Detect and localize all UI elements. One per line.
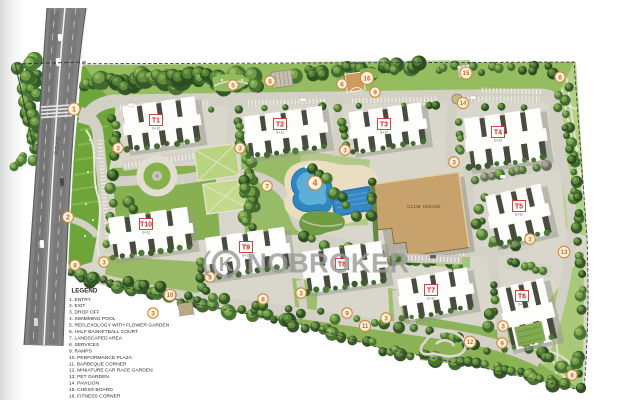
svg-text:16: 16 (363, 75, 371, 82)
svg-text:12. MINIATURE CAR RACE GARDEN: 12. MINIATURE CAR RACE GARDEN (69, 368, 153, 374)
svg-text:13: 13 (561, 250, 568, 256)
svg-text:1: 1 (72, 105, 76, 114)
svg-text:G+12: G+12 (494, 139, 502, 143)
svg-text:T2: T2 (276, 122, 284, 129)
svg-text:13. PET GARDEN: 13. PET GARDEN (69, 374, 109, 380)
svg-text:3: 3 (343, 147, 347, 154)
svg-text:10: 10 (167, 293, 174, 299)
svg-text:5. REFLEXOLOGY WITH FLOWER GAR: 5. REFLEXOLOGY WITH FLOWER GARDEN (69, 323, 170, 329)
svg-text:10. PERFORMANCE PLAZA: 10. PERFORMANCE PLAZA (69, 355, 133, 361)
svg-text:G+12: G+12 (142, 231, 150, 235)
svg-text:G+12: G+12 (380, 131, 388, 135)
svg-text:6. HALF BASKETBALL COURT: 6. HALF BASKETBALL COURT (69, 329, 138, 335)
svg-text:15. CHESS BOARD: 15. CHESS BOARD (69, 387, 113, 393)
svg-text:9: 9 (373, 89, 377, 96)
svg-text:3: 3 (528, 236, 532, 243)
svg-text:1. ENTRY: 1. ENTRY (69, 297, 92, 303)
svg-text:9: 9 (345, 310, 349, 317)
svg-text:NOBROKER: NOBROKER (247, 248, 410, 279)
svg-text:9. RAMPS: 9. RAMPS (69, 348, 93, 354)
svg-text:14. PAVILION: 14. PAVILION (69, 381, 99, 387)
svg-text:8: 8 (261, 296, 265, 303)
svg-text:LEGEND: LEGEND (72, 288, 98, 295)
svg-text:2: 2 (66, 215, 70, 222)
svg-text:G+12: G+12 (276, 131, 284, 135)
svg-text:T7: T7 (427, 288, 435, 295)
svg-text:3: 3 (452, 159, 456, 166)
svg-text:3: 3 (116, 145, 120, 152)
svg-text:3: 3 (102, 259, 106, 266)
svg-text:7. LANDSCAPED AREA: 7. LANDSCAPED AREA (69, 336, 123, 342)
svg-text:3: 3 (501, 323, 505, 330)
svg-text:8: 8 (558, 74, 562, 81)
svg-text:12: 12 (467, 340, 474, 346)
svg-text:16. FITNESS CORNER: 16. FITNESS CORNER (69, 394, 121, 400)
svg-text:T10: T10 (140, 222, 152, 229)
svg-text:3: 3 (151, 310, 155, 317)
svg-text:G+12: G+12 (518, 303, 526, 307)
svg-text:T1: T1 (152, 118, 160, 125)
svg-text:3. DROP OFF: 3. DROP OFF (69, 310, 100, 316)
svg-text:2. EXIT: 2. EXIT (69, 303, 85, 309)
svg-text:T3: T3 (380, 122, 388, 129)
svg-text:15: 15 (463, 70, 470, 77)
svg-text:8. SERVICES: 8. SERVICES (69, 342, 100, 348)
svg-text:T4: T4 (494, 130, 502, 137)
svg-text:G+12: G+12 (152, 127, 160, 131)
svg-text:G+12: G+12 (515, 213, 523, 217)
svg-text:6: 6 (340, 81, 344, 88)
svg-text:8: 8 (570, 372, 574, 379)
svg-text:8: 8 (73, 262, 77, 269)
svg-text:5: 5 (231, 82, 235, 89)
svg-text:G+12: G+12 (427, 297, 435, 301)
svg-text:T5: T5 (515, 204, 523, 211)
svg-text:3: 3 (238, 145, 242, 152)
svg-text:8: 8 (268, 78, 272, 85)
svg-text:3: 3 (384, 315, 388, 322)
svg-text:14: 14 (460, 101, 467, 107)
svg-text:11. BARBEQUE CORNER: 11. BARBEQUE CORNER (69, 361, 127, 367)
svg-text:4: 4 (312, 178, 317, 188)
svg-text:3: 3 (299, 290, 303, 297)
svg-text:4. SWIMMING POOL: 4. SWIMMING POOL (69, 316, 116, 322)
svg-text:11: 11 (362, 324, 369, 330)
svg-text:CLUB HOUSE: CLUB HOUSE (407, 204, 441, 209)
svg-text:K: K (219, 254, 234, 276)
svg-text:T6: T6 (518, 294, 526, 301)
svg-text:7: 7 (265, 183, 269, 190)
svg-text:9: 9 (500, 340, 504, 347)
